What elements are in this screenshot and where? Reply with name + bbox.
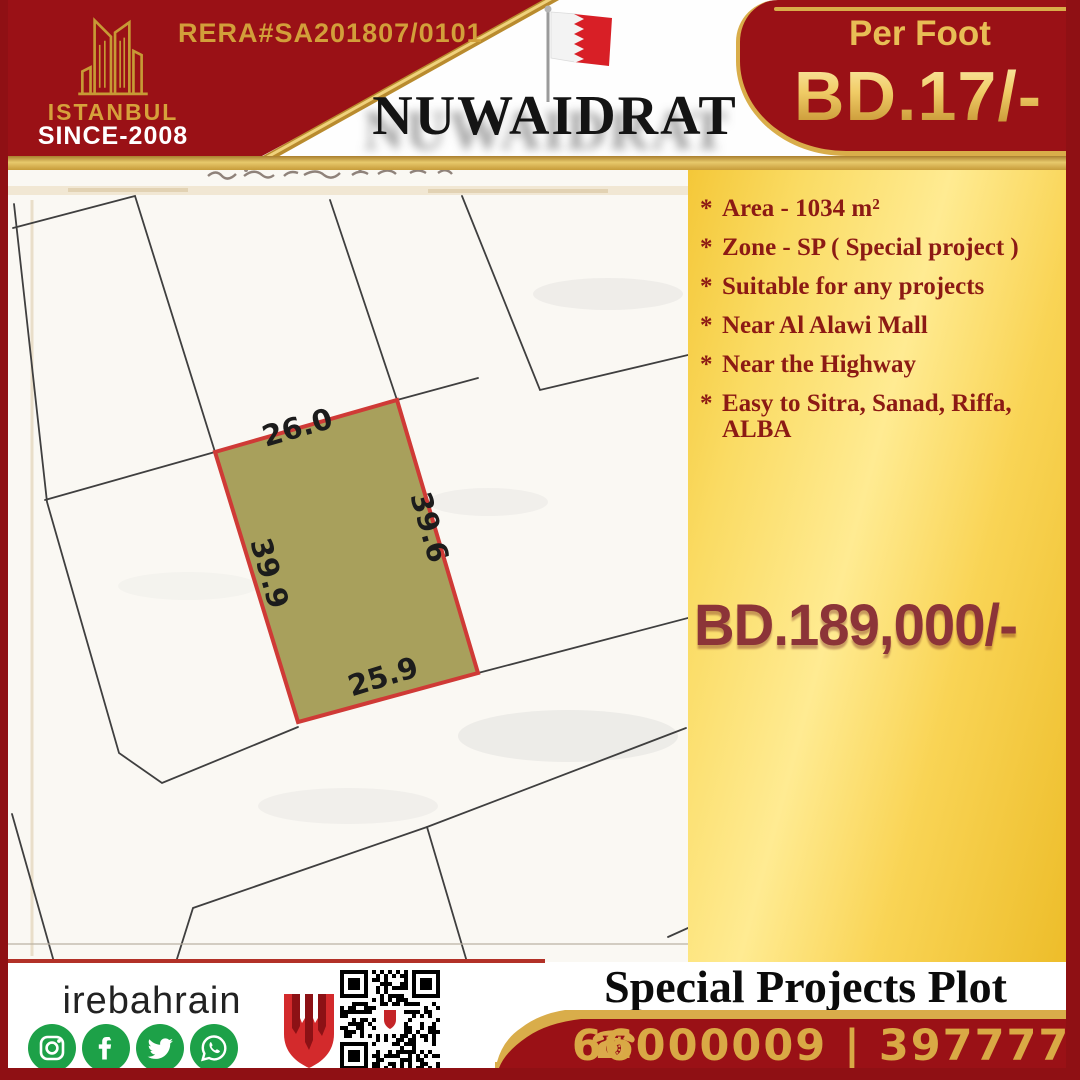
feature-text: Easy to Sitra, Sanad, Riffa, ALBA	[722, 391, 1066, 443]
location-title: NUWAIDRAT	[320, 84, 790, 148]
total-price: BD.189,000/-	[694, 592, 1055, 659]
feature-text: Near Al Alawi Mall	[722, 313, 928, 339]
facebook-icon	[82, 1024, 130, 1072]
rera-number: RERA#SA201807/0101	[178, 18, 483, 49]
bullet-asterisk: *	[700, 196, 722, 222]
bullet-asterisk: *	[700, 235, 722, 261]
feature-text: Zone - SP ( Special project )	[722, 235, 1019, 261]
phone-numbers: 66000009 | 39777724	[572, 1021, 1066, 1068]
feature-item: *Near Al Alawi Mall	[700, 313, 1066, 339]
social-handle: irebahrain	[52, 980, 252, 1023]
phone-panel: ☎ 66000009 | 39777724	[495, 1010, 1066, 1068]
brand-since: SINCE-2008	[18, 122, 208, 151]
frame-bottom	[0, 1068, 1080, 1080]
qr-code	[338, 968, 442, 1072]
feature-list: *Area - 1034 m² *Zone - SP ( Special pro…	[700, 196, 1066, 456]
flyer-canvas: *Area - 1034 m² *Zone - SP ( Special pro…	[0, 0, 1080, 1080]
plot-type-title: Special Projects Plot	[548, 960, 1063, 1013]
feature-item: *Suitable for any projects	[700, 274, 1066, 300]
frame-right	[1066, 0, 1080, 1080]
feature-text: Suitable for any projects	[722, 274, 984, 300]
gold-divider-strip	[0, 156, 1080, 170]
cadastral-map: 26.0 39.6 39.9 25.9	[8, 166, 688, 962]
per-foot-price: BD.17/-	[768, 56, 1068, 136]
features-panel: *Area - 1034 m² *Zone - SP ( Special pro…	[688, 156, 1066, 962]
feature-item: *Area - 1034 m²	[700, 196, 1066, 222]
feature-text: Near the Highway	[722, 352, 916, 378]
bullet-asterisk: *	[700, 274, 722, 300]
feature-item: *Near the Highway	[700, 352, 1066, 378]
instagram-icon	[28, 1024, 76, 1072]
feature-item: *Easy to Sitra, Sanad, Riffa, ALBA	[700, 391, 1066, 443]
feature-item: *Zone - SP ( Special project )	[700, 235, 1066, 261]
bullet-asterisk: *	[700, 391, 722, 443]
feature-text: Area - 1034 m²	[722, 196, 880, 222]
per-foot-label: Per Foot	[780, 14, 1060, 54]
twitter-icon	[136, 1024, 184, 1072]
istanbul-towers-icon	[70, 6, 156, 100]
footer-divider-line	[8, 960, 545, 963]
per-foot-price-panel: Per Foot BD.17/-	[736, 0, 1080, 156]
bullet-asterisk: *	[700, 352, 722, 378]
crest-shield-logo	[282, 992, 336, 1070]
bullet-asterisk: *	[700, 313, 722, 339]
frame-left	[0, 0, 8, 1080]
gold-trim-line	[774, 7, 1080, 11]
whatsapp-icon	[190, 1024, 238, 1072]
header: ISTANBUL SINCE-2008 RERA#SA201807/0101 N…	[0, 0, 1080, 156]
